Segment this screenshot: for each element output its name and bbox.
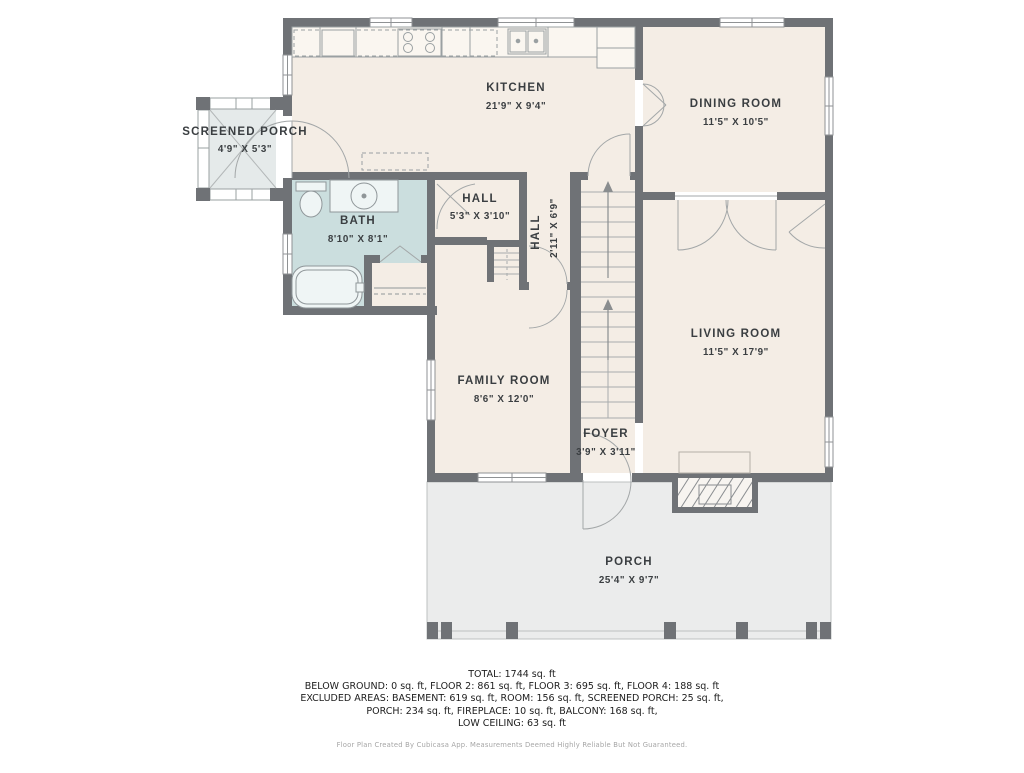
area-summary: TOTAL: 1744 sq. ft BELOW GROUND: 0 sq. f… (0, 669, 1024, 730)
summary-floors: BELOW GROUND: 0 sq. ft, FLOOR 2: 861 sq.… (0, 681, 1024, 693)
bathtub-icon (292, 266, 364, 308)
wall-dining-south-2 (777, 192, 825, 200)
wall-center-2 (635, 126, 643, 423)
wall-kitchen-south (283, 172, 527, 180)
floor-plan-canvas: SCREENED PORCH 4'9" X 5'3" KITCHEN 21'9"… (0, 0, 1024, 768)
bath-label: BATH (340, 215, 376, 227)
hall-upper-label: HALL (462, 193, 497, 205)
wall-bathcloset-west (364, 255, 372, 315)
screen-window-top (210, 98, 272, 109)
hall-lower-dims: 2'11" X 6'9" (549, 198, 560, 258)
kitchen-counter (292, 27, 597, 57)
hall-upper-dims: 5'3" X 3'10" (450, 211, 510, 222)
wall-dining-south-1 (643, 192, 675, 200)
screen-window-bottom (210, 189, 272, 200)
bath-dims: 8'10" X 8'1" (328, 234, 388, 245)
disclaimer-note: Floor Plan Created By Cubicasa App. Meas… (0, 741, 1024, 749)
wall-family-west (427, 172, 435, 482)
wall-closet1-north (487, 240, 520, 247)
wall-bathcloset-north-2 (421, 255, 427, 263)
summary-total: TOTAL: 1744 sq. ft (0, 669, 1024, 681)
wall-stairs-west (570, 172, 581, 473)
fireplace (664, 473, 769, 517)
summary-excluded-2: PORCH: 234 sq. ft, FIREPLACE: 10 sq. ft,… (0, 706, 1024, 718)
summary-excluded-1: EXCLUDED AREAS: BASEMENT: 619 sq. ft, RO… (0, 693, 1024, 705)
screen-window-left (198, 110, 209, 188)
porch-dims: 25'4" X 9'7" (599, 575, 659, 586)
kitchen-label: KITCHEN (486, 82, 546, 94)
foyer-dims: 3'9" X 3'11" (576, 447, 636, 458)
living-room-dims: 11'5" X 17'9" (703, 347, 769, 358)
porch-label: PORCH (605, 556, 653, 568)
hall-lower-label: HALL (530, 214, 542, 249)
wall-hall2-south-1 (519, 282, 529, 290)
bath-vanity-icon (330, 180, 398, 212)
foyer-label: FOYER (583, 428, 629, 440)
wall-center-1 (635, 18, 643, 80)
family-room-label: FAMILY ROOM (457, 375, 550, 387)
hearth (679, 452, 750, 473)
kitchen-dims: 21'9" X 9'4" (486, 101, 546, 112)
screened-porch-dims: 4'9" X 5'3" (218, 144, 272, 155)
dining-room-label: DINING ROOM (690, 98, 782, 110)
wall-south-1 (427, 473, 478, 482)
family-room-dims: 8'6" X 12'0" (474, 394, 534, 405)
bath-closet-floor (372, 263, 427, 306)
dining-room-dims: 11'5" X 10'5" (703, 117, 769, 128)
living-room-label: LIVING ROOM (691, 328, 782, 340)
wall-hall2-west (519, 180, 527, 290)
screened-porch-label: SCREENED PORCH (182, 126, 307, 138)
floorplan-svg: SCREENED PORCH 4'9" X 5'3" KITCHEN 21'9"… (0, 0, 1024, 768)
wall-hall1-south (427, 237, 487, 245)
summary-excluded-3: LOW CEILING: 63 sq. ft (0, 718, 1024, 730)
wall-south-2 (546, 473, 583, 482)
